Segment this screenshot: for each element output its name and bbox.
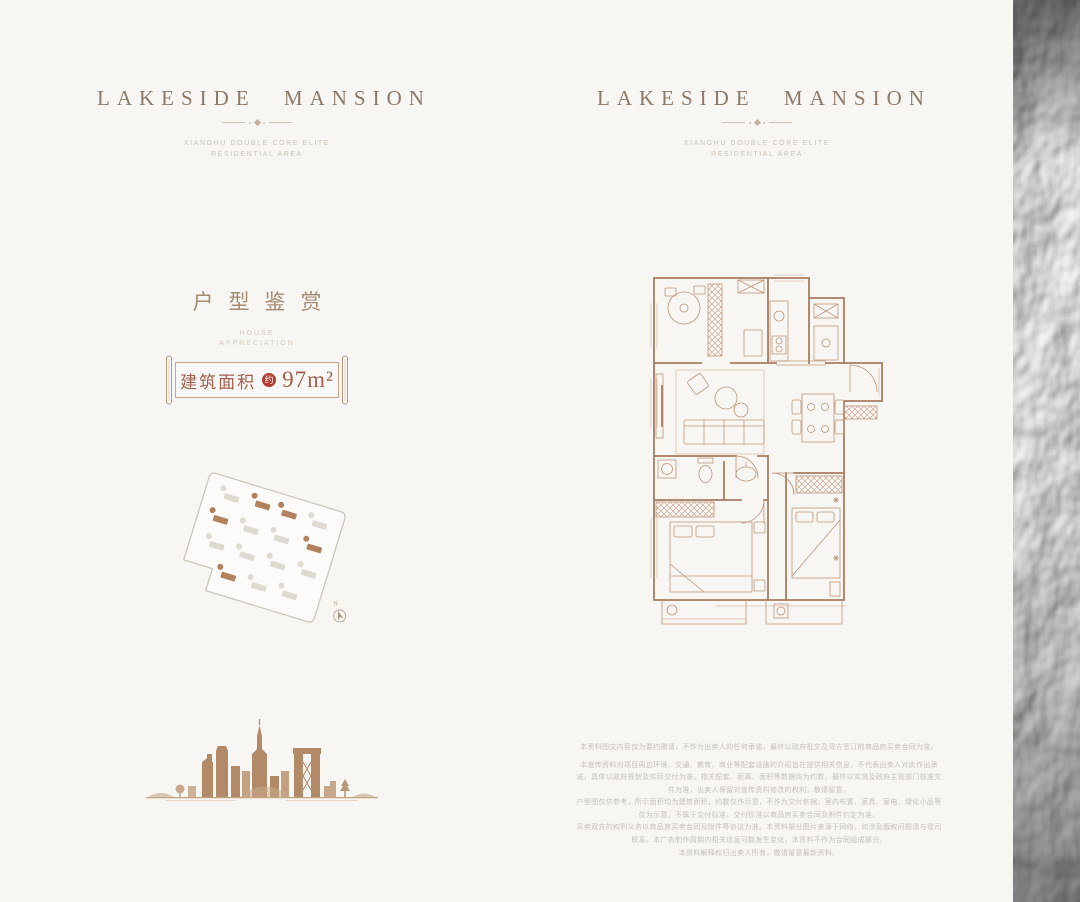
- disclaimer-line: 本宣传资料对项目周边环境、交通、教育、商业等配套设施的介绍旨在提供相关信息，不代…: [573, 760, 945, 798]
- disclaimer-line: 本资料图文内容仅为要约邀请，不作为出卖人的任何承诺，最终以政府批文及双方签订的商…: [573, 742, 945, 755]
- city-skyline-illustration: [146, 718, 378, 804]
- left-brand-title: LAKESIDE MANSION: [97, 86, 417, 111]
- water-texture-strip: [1013, 0, 1080, 902]
- brochure-page: { "page": { "background": "#f7f6f3", "co…: [0, 0, 1080, 902]
- ornament-divider: [222, 120, 292, 125]
- ornament-divider: [722, 120, 792, 125]
- diamond-ornament-icon: [253, 119, 260, 126]
- section-subtitle: HOUSE APPRECIATION: [97, 329, 417, 349]
- section-title: 户型鉴赏: [97, 286, 417, 316]
- area-banner-bar: 建筑面积 约 97m²: [175, 362, 339, 398]
- right-brand-header: LAKESIDE MANSION XIANGHU DOUBLE CORE ELI…: [597, 86, 917, 160]
- scroll-roller-left-icon: [162, 355, 175, 405]
- ornament-dot: [249, 122, 251, 124]
- disclaimer-text: 本资料图文内容仅为要约邀请，不作为出卖人的任何承诺，最终以政府批文及双方签订的商…: [573, 742, 945, 861]
- ornament-line-left: [722, 122, 745, 123]
- ornament-line-right: [769, 122, 792, 123]
- disclaimer-line: 买卖双方的权利义务以商品房买卖合同及附件等协议为准。本资料部分图片来源于网络，如…: [573, 822, 945, 847]
- area-label: 建筑面积: [180, 368, 256, 393]
- right-brand-title: LAKESIDE MANSION: [597, 86, 917, 111]
- left-brand-subtitle: XIANGHU DOUBLE CORE ELITE RESIDENTIAL AR…: [97, 138, 417, 160]
- brand-subtitle-line1: XIANGHU DOUBLE CORE ELITE: [597, 138, 917, 149]
- area-value: 97m²: [282, 367, 334, 393]
- floor-plan-drawing: [646, 268, 894, 642]
- ornament-dot: [749, 122, 751, 124]
- disclaimer-line: 户型图仅供参考，所示面积均为建筑面积，约数仅作示意，不作为交付依据。室内布置、家…: [573, 797, 945, 822]
- section-subtitle-line1: HOUSE: [97, 329, 417, 339]
- right-brand-subtitle: XIANGHU DOUBLE CORE ELITE RESIDENTIAL AR…: [597, 138, 917, 160]
- section-subtitle-line2: APPRECIATION: [97, 339, 417, 349]
- north-arrow-icon: N: [329, 599, 347, 624]
- section-heading: 户型鉴赏 HOUSE APPRECIATION: [97, 286, 417, 349]
- brand-subtitle-line2: RESIDENTIAL AREA: [597, 149, 917, 160]
- diamond-ornament-icon: [753, 119, 760, 126]
- left-brand-header: LAKESIDE MANSION XIANGHU DOUBLE CORE ELI…: [97, 86, 417, 160]
- ornament-dot: [763, 122, 765, 124]
- ornament-line-right: [269, 122, 292, 123]
- approx-badge: 约: [262, 373, 276, 387]
- site-plan-drawing: N: [163, 466, 361, 636]
- ornament-line-left: [222, 122, 245, 123]
- brand-subtitle-line1: XIANGHU DOUBLE CORE ELITE: [97, 138, 417, 149]
- brand-subtitle-line2: RESIDENTIAL AREA: [97, 149, 417, 160]
- ornament-dot: [263, 122, 265, 124]
- scroll-roller-right-icon: [339, 355, 352, 405]
- area-banner: 建筑面积 约 97m²: [162, 355, 352, 405]
- texture-shading-overlay: [1013, 0, 1080, 902]
- compass-label: N: [332, 600, 340, 609]
- disclaimer-line: 本资料解释权归出卖人所有，敬请留意最新资料。: [573, 848, 945, 861]
